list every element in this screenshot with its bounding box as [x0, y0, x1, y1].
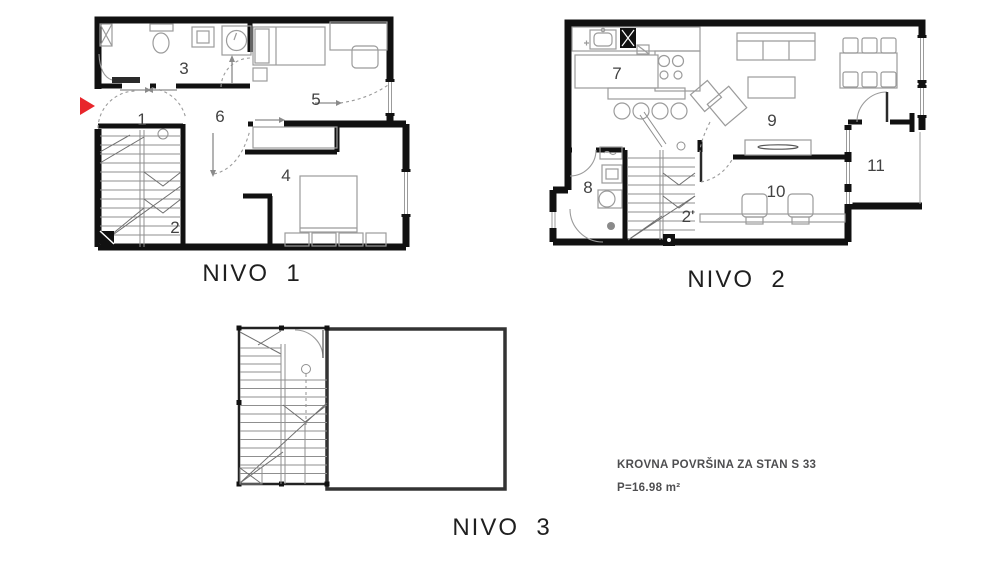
nivo1-bedroom4-furniture	[253, 127, 386, 246]
coffee-table	[748, 77, 795, 98]
nivo3-stairs	[240, 330, 327, 484]
dining-table	[840, 53, 897, 88]
room3-door-leaf	[112, 77, 140, 83]
nivo3-floorplan	[230, 318, 515, 500]
nivo1-bathroom-fixtures	[100, 24, 251, 55]
room-number-1: 1	[137, 110, 146, 129]
nivo1-interior-walls	[98, 20, 337, 247]
chair-room5	[352, 46, 378, 68]
floorplan-sheet: 1 2 3 4 5 6 NIVO 1	[0, 0, 1000, 562]
armchair	[707, 86, 746, 125]
nivo1-stairs	[100, 129, 181, 247]
room-number-9: 9	[767, 111, 776, 130]
roof-area-value: P=16.98 m²	[617, 482, 680, 494]
entrance-arrow-icon	[80, 97, 95, 115]
nivo2-interior-walls	[568, 113, 912, 242]
nivo2-doors	[570, 92, 887, 242]
nivo2-floorplan: 7 8 9 10 2' 11	[545, 8, 945, 260]
room-number-11: 11	[867, 156, 885, 175]
nivo1-floorplan: 1 2 3 4 5 6	[78, 8, 420, 260]
roof-area-title: KROVNA POVRŠINA ZA STAN S 33	[617, 459, 816, 471]
room-number-3: 3	[179, 59, 188, 78]
nivo2-kitchen	[572, 27, 700, 119]
nivo2-living-room	[691, 33, 897, 155]
room-number-7: 7	[612, 64, 621, 83]
roof-terrace	[327, 329, 505, 489]
room-number-4: 4	[281, 166, 290, 185]
dining-chair	[843, 38, 858, 53]
sofa	[737, 33, 815, 60]
stove-burner	[659, 56, 670, 67]
room-number-2: 2	[170, 218, 179, 237]
room-number-6: 6	[215, 107, 224, 126]
nivo2-bathroom	[598, 147, 622, 230]
bed-room4	[300, 176, 357, 232]
level-label-nivo1: NIVO 1	[172, 260, 332, 288]
nivo1-bedroom5-furniture	[253, 22, 387, 81]
nivo3-walls	[237, 326, 506, 490]
room-number-10: 10	[767, 182, 786, 201]
room-number-2p: 2'	[682, 207, 695, 226]
room-number-5: 5	[311, 90, 320, 109]
room-number-8: 8	[583, 178, 592, 197]
closet-room4	[253, 127, 337, 148]
bar-stool	[614, 103, 630, 119]
tv-stand	[745, 140, 811, 155]
level-label-nivo3: NIVO 3	[422, 514, 582, 542]
bed-room5	[253, 27, 325, 65]
desk	[700, 214, 845, 222]
level-label-nivo2: NIVO 2	[657, 266, 817, 294]
